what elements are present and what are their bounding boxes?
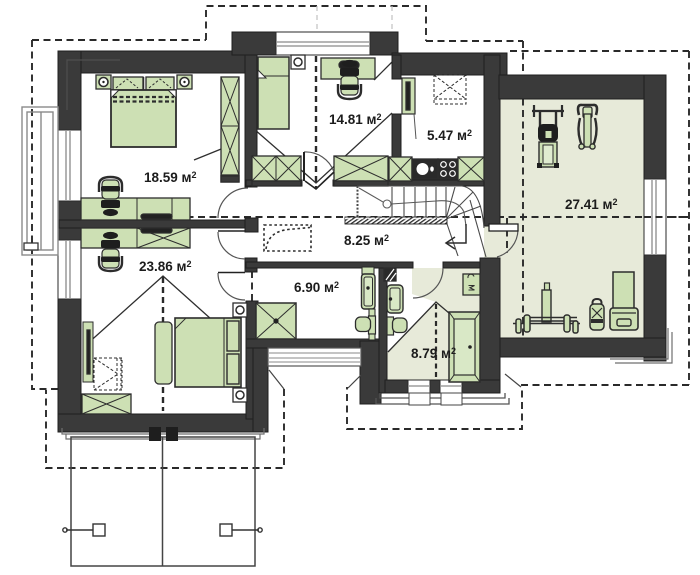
svg-text:6.90 м2: 6.90 м2 [294,280,339,295]
svg-text:14.81 м2: 14.81 м2 [329,112,382,127]
svg-text:18.59 м2: 18.59 м2 [144,170,197,185]
svg-text:8.79 м2: 8.79 м2 [411,346,456,361]
svg-text:23.86 м2: 23.86 м2 [139,259,192,274]
svg-text:8.25 м2: 8.25 м2 [344,233,389,248]
svg-text:27.41 м2: 27.41 м2 [565,197,618,212]
svg-text:5.47 м2: 5.47 м2 [427,128,472,143]
